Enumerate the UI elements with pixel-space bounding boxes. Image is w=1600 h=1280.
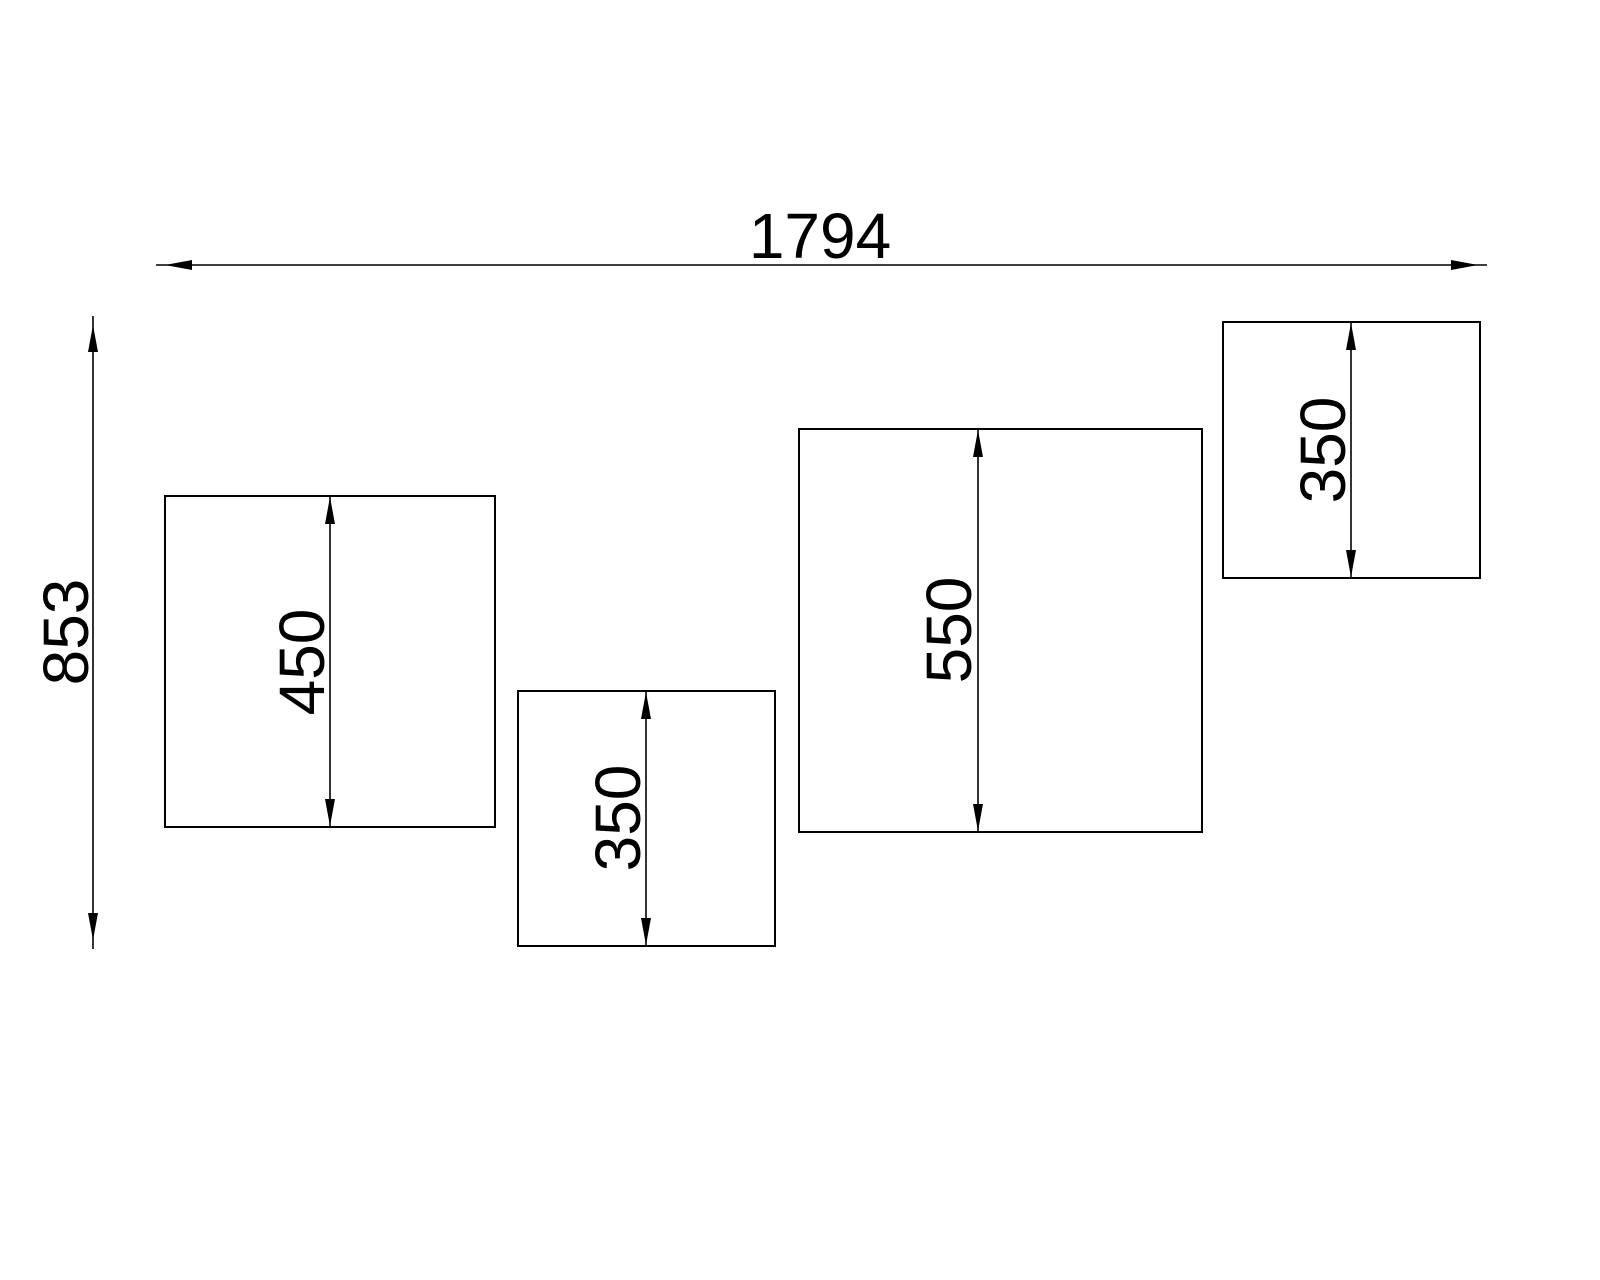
arrowhead-up-icon <box>973 430 983 457</box>
panel-2-height-label: 350 <box>582 765 654 872</box>
drawing-canvas: 1794 853 450 350 <box>0 0 1600 1280</box>
arrowhead-up-icon <box>641 692 651 719</box>
arrowhead-up-icon <box>88 325 98 352</box>
overall-width-label: 1794 <box>749 200 891 272</box>
arrowhead-left-icon <box>165 260 192 270</box>
overall-height-label: 853 <box>30 579 102 686</box>
panel-3-outline <box>799 429 1202 832</box>
arrowhead-right-icon <box>1451 260 1478 270</box>
panel-3: 550 <box>799 429 1202 832</box>
arrowhead-up-icon <box>325 497 335 524</box>
panel-1-height-label: 450 <box>266 609 338 716</box>
arrowhead-down-icon <box>641 918 651 945</box>
overall-width-dimension: 1794 <box>156 200 1487 272</box>
arrowhead-down-icon <box>1346 550 1356 577</box>
panel-1: 450 <box>165 496 495 827</box>
panel-2: 350 <box>518 691 775 946</box>
arrowhead-down-icon <box>88 913 98 940</box>
drawing-area: 1794 853 450 350 <box>0 0 1600 1280</box>
arrowhead-up-icon <box>1346 323 1356 350</box>
arrowhead-down-icon <box>325 799 335 826</box>
arrowhead-down-icon <box>973 804 983 831</box>
panel-4: 350 <box>1223 322 1480 578</box>
overall-height-dimension: 853 <box>30 316 102 949</box>
panel-4-height-label: 350 <box>1287 397 1359 504</box>
panel-3-height-label: 550 <box>913 577 985 684</box>
